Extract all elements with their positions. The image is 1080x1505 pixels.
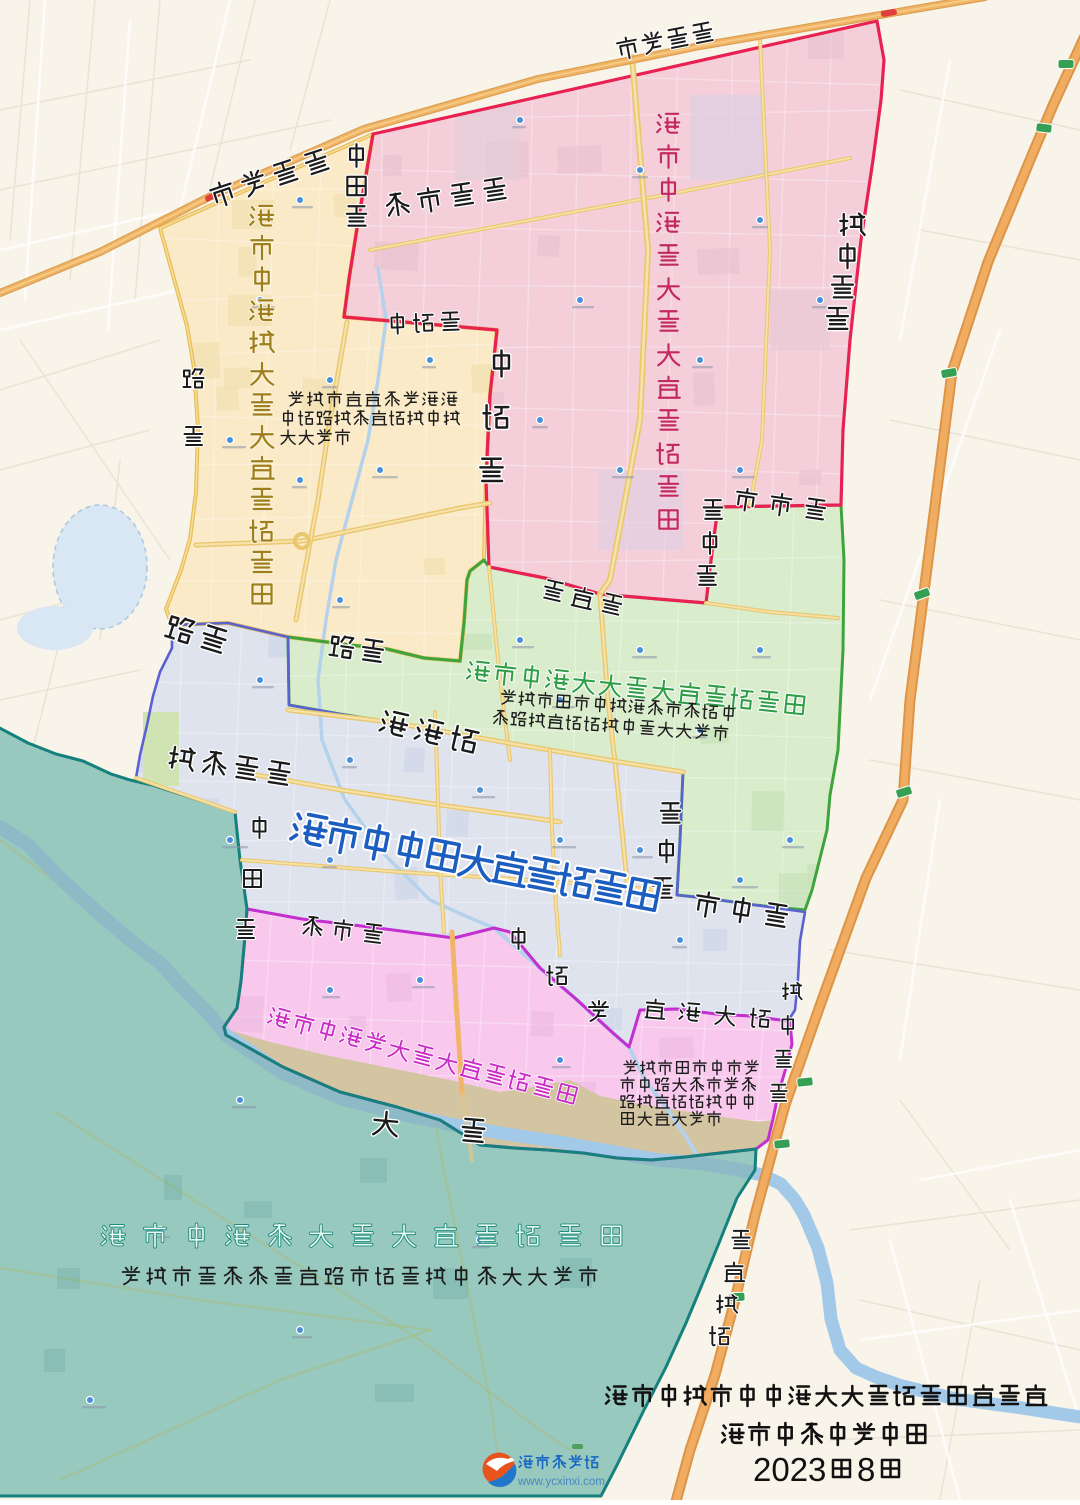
svg-text:8: 8: [857, 1451, 875, 1488]
svg-text:2023: 2023: [753, 1451, 826, 1488]
svg-text:www.ycxinxi.com: www.ycxinxi.com: [517, 1476, 605, 1488]
